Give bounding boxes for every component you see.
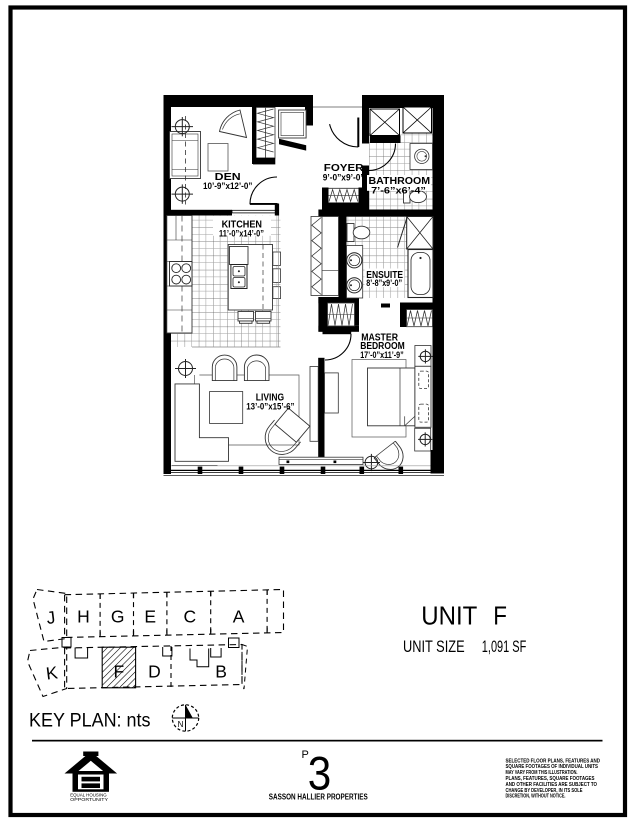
svg-text:8’-8”x9’-0”: 8’-8”x9’-0”: [366, 278, 402, 288]
svg-text:B: B: [215, 662, 227, 682]
svg-text:J: J: [45, 607, 56, 628]
svg-text:9’-0”x9’-0”: 9’-0”x9’-0”: [323, 172, 365, 182]
svg-text:N: N: [178, 720, 184, 729]
svg-text:SASSON HALLIER PROPERTIES: SASSON HALLIER PROPERTIES: [269, 792, 368, 801]
svg-text:K: K: [45, 662, 59, 683]
svg-text:E: E: [144, 606, 156, 626]
svg-text:H: H: [77, 606, 90, 626]
svg-text:UNIT SIZE: UNIT SIZE: [403, 637, 465, 656]
svg-text:F: F: [493, 602, 507, 630]
svg-text:17’-0”x11’-9”: 17’-0”x11’-9”: [360, 350, 404, 360]
svg-text:3: 3: [308, 746, 332, 799]
svg-text:A: A: [233, 606, 245, 626]
svg-text:UNIT: UNIT: [421, 602, 477, 630]
svg-text:DISCRETION, WITHOUT NOTICE.: DISCRETION, WITHOUT NOTICE.: [506, 794, 566, 800]
svg-text:13’-0”x15’-6”: 13’-0”x15’-6”: [246, 401, 294, 411]
svg-text:10’-9”x12’-0”: 10’-9”x12’-0”: [203, 181, 252, 191]
svg-text:F: F: [114, 662, 125, 682]
svg-text:OPPORTUNITY: OPPORTUNITY: [70, 797, 109, 803]
svg-text:C: C: [183, 606, 196, 626]
svg-text:1,091 SF: 1,091 SF: [482, 637, 527, 656]
svg-text:KEY PLAN: nts: KEY PLAN: nts: [29, 710, 151, 732]
svg-text:G: G: [111, 606, 125, 626]
svg-text:11’-0”x14’-0”: 11’-0”x14’-0”: [219, 228, 264, 238]
svg-text:D: D: [148, 662, 161, 682]
svg-text:7’-6”x6’-4”: 7’-6”x6’-4”: [371, 186, 426, 196]
